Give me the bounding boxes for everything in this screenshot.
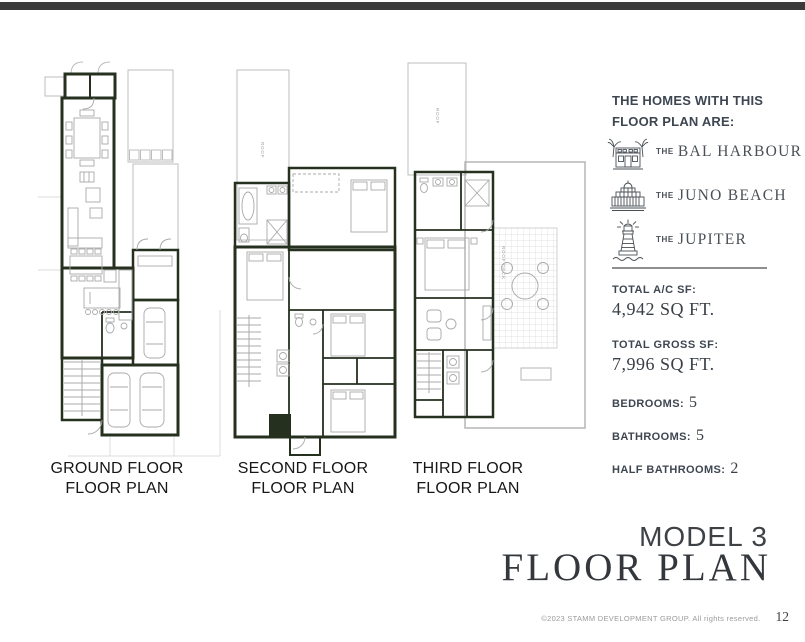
lounge-furniture [427,306,491,340]
home-name-juno-beach: THEJUNO BEACH [656,187,787,205]
top-border-bar [0,2,805,10]
laundry-units [447,356,459,384]
home-row-jupiter: THEJUPITER [606,218,781,262]
roof-deck: ROOF DECK [465,162,585,428]
laundry-units [269,350,291,436]
home-name-bal-harbour: THEBAL HARBOUR [656,143,802,161]
bedroom-furniture [417,238,477,290]
roof-strip-annotation: ROOF [260,142,265,158]
home-row-juno-beach: THEJUNO BEACH [606,174,781,218]
stat-bathrooms: BATHROOMS: 5 [612,427,782,445]
floor-plan-title: FLOOR PLAN [502,545,771,590]
second-floor-label-line2: FLOOR PLAN [218,479,388,499]
exterior-walls [235,168,395,455]
garage-cars [108,308,165,427]
beach-pavilion-icon [606,180,650,212]
copyright-text: ©2023 STAMM DEVELOPMENT GROUP. All right… [541,614,760,623]
stat-label: HALF BATHROOMS: [612,464,725,476]
home-prefix: THE [656,147,674,156]
roof-strip-outline: ROOF [237,70,289,240]
stat-value: 5 [689,394,697,412]
panel-divider [612,267,767,269]
stat-label: TOTAL GROSS SF: [612,339,782,351]
site-lines [38,197,220,456]
stat-total-gross-sf: TOTAL GROSS SF: 7,996 SQ FT. [612,339,782,375]
tower [415,172,493,417]
bath-fixtures [420,178,489,206]
home-title: JUNO BEACH [678,187,787,204]
homes-list: THEBAL HARBOUR THEJUNO BEACH [606,130,781,262]
homes-heading-line2: FLOOR PLAN ARE: [612,111,782,132]
second-floor-plan-drawing: ROOF [227,62,403,458]
stairs [417,352,441,393]
stat-total-ac-sf: TOTAL A/C SF: 4,942 SQ FT. [612,284,782,320]
stairs [237,315,261,387]
stat-value: 7,996 SQ FT. [612,354,782,375]
roof-strip-annotation: ROOF [435,108,440,124]
stat-label: BATHROOMS: [612,431,691,443]
ground-floor-label-line1: GROUND FLOOR [32,459,202,479]
stat-label: TOTAL A/C SF: [612,284,782,296]
home-prefix: THE [656,191,674,200]
lighthouse-icon [606,219,650,261]
footer: ©2023 STAMM DEVELOPMENT GROUP. All right… [541,609,789,625]
home-title: BAL HARBOUR [678,143,802,160]
stairs [64,360,100,416]
master-bath-fixtures [239,186,287,244]
brochure-page: ROOF [0,0,805,642]
home-prefix: THE [656,235,674,244]
stats-panel: TOTAL A/C SF: 4,942 SQ FT. TOTAL GROSS S… [612,284,782,478]
ground-floor-label: GROUND FLOOR FLOOR PLAN [32,459,202,498]
exterior-walls [62,74,178,435]
ground-floor-plan-drawing [38,60,223,458]
third-floor-label: THIRD FLOOR FLOOR PLAN [383,459,553,498]
home-name-jupiter: THEJUPITER [656,231,747,249]
home-title: JUPITER [678,231,747,248]
homes-heading-line1: THE HOMES WITH THIS [612,90,782,111]
stat-value: 2 [730,460,738,478]
third-floor-label-line1: THIRD FLOOR [383,459,553,479]
second-floor-label: SECOND FLOOR FLOOR PLAN [218,459,388,498]
third-floor-label-line2: FLOOR PLAN [383,479,553,499]
home-row-bal-harbour: THEBAL HARBOUR [606,130,781,174]
stat-value: 4,942 SQ FT. [612,299,782,320]
stat-half-bathrooms: HALF BATHROOMS: 2 [612,460,782,478]
stat-label: BEDROOMS: [612,398,684,410]
stat-bedrooms: BEDROOMS: 5 [612,394,782,412]
bedroom-furniture [247,174,387,449]
stat-value: 5 [696,427,704,445]
homes-heading: THE HOMES WITH THIS FLOOR PLAN ARE: [612,90,782,132]
third-floor-plan-drawing: ROOF ROOF DECK [403,60,593,458]
second-floor-label-line1: SECOND FLOOR [218,459,388,479]
ground-floor-label-line2: FLOOR PLAN [32,479,202,499]
roof-strip-outline: ROOF [408,63,466,175]
page-number: 12 [776,609,790,625]
house-with-palms-icon [606,132,650,172]
